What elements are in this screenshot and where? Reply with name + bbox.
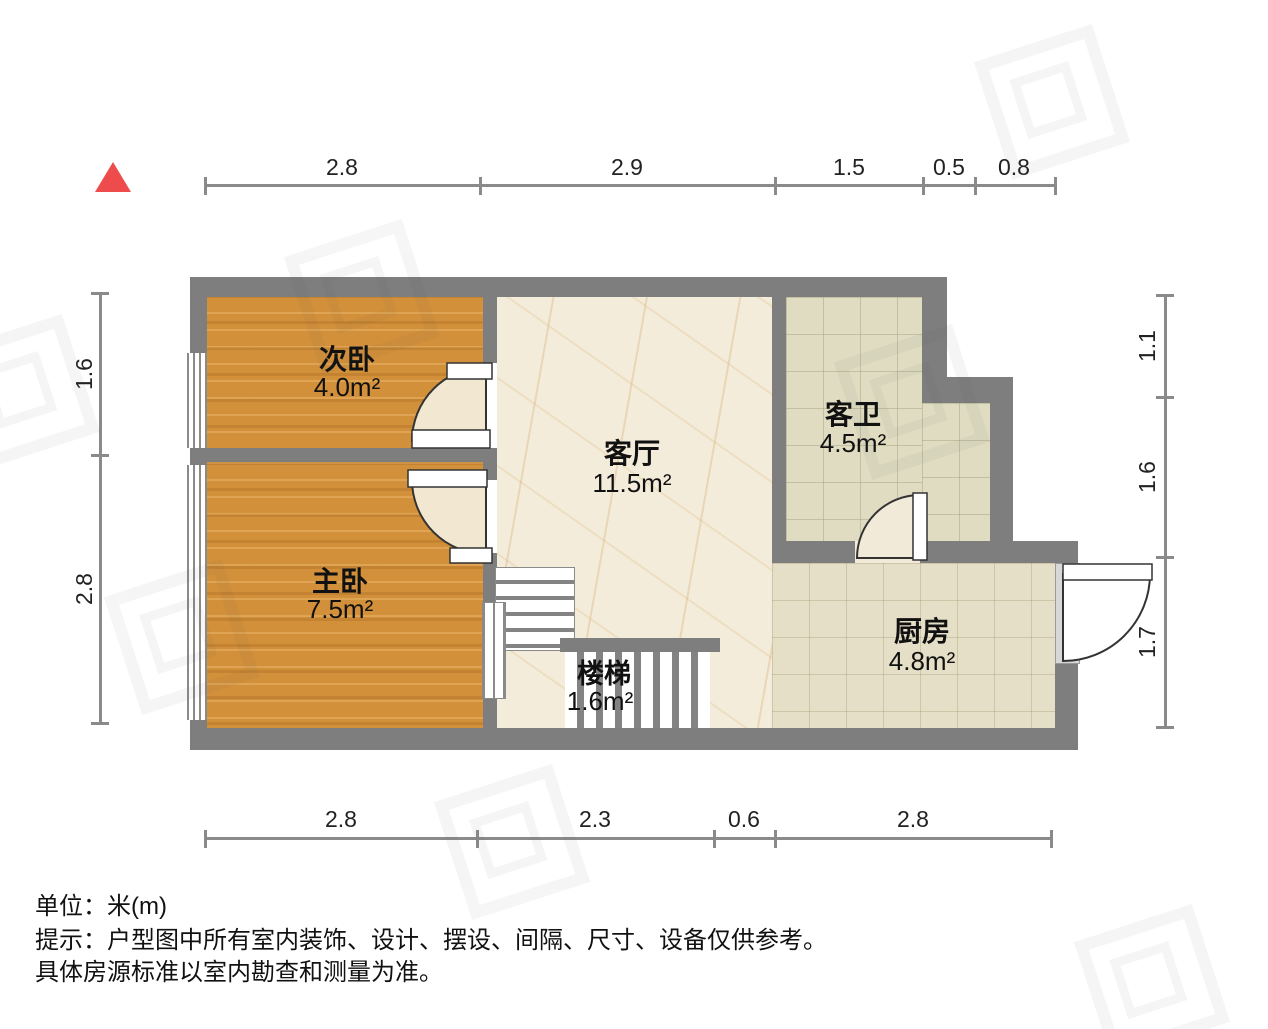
dim-right-3: 1.7 xyxy=(1134,612,1160,672)
area-master-bedroom: 7.5m² xyxy=(307,594,373,625)
label-kitchen: 厨房 xyxy=(894,610,950,650)
dim-bottom-2: 2.3 xyxy=(560,806,630,833)
label-guest-bathroom: 客卫 xyxy=(825,393,881,433)
entrance-door-leaf xyxy=(1063,564,1152,580)
master-bedroom-door-leaf xyxy=(408,470,487,487)
area-stairs: 1.6m² xyxy=(567,686,633,717)
dim-tick xyxy=(1156,556,1174,559)
dim-tick xyxy=(479,177,482,195)
dim-tick xyxy=(91,722,109,725)
area-second-bedroom: 4.0m² xyxy=(314,372,380,403)
area-kitchen: 4.8m² xyxy=(889,646,955,677)
dim-bottom-1: 2.8 xyxy=(306,806,376,833)
dim-tick xyxy=(774,177,777,195)
dim-tick xyxy=(1156,396,1174,399)
bathroom-door-leaf xyxy=(913,493,927,560)
dim-tick xyxy=(1054,177,1057,195)
dim-top-3: 1.5 xyxy=(814,154,884,181)
dim-tick xyxy=(204,177,207,195)
dim-tick xyxy=(91,454,109,457)
dim-top-4: 0.5 xyxy=(914,154,984,181)
dim-tick xyxy=(204,830,207,848)
second-bedroom-door-leaf xyxy=(412,430,490,448)
master-bedroom-door-jamb xyxy=(450,548,492,563)
dim-top-5: 0.8 xyxy=(979,154,1049,181)
dim-bottom-3: 0.6 xyxy=(709,806,779,833)
master-bedroom-door-swing xyxy=(412,480,486,554)
dim-tick xyxy=(1156,726,1174,729)
dim-top-1: 2.8 xyxy=(307,154,377,181)
floor-plan-page: 次卧 4.0m² 主卧 7.5m² 客厅 11.5m² 客卫 4.5m² 厨房 … xyxy=(0,0,1268,1029)
area-guest-bathroom: 4.5m² xyxy=(820,428,886,459)
area-living-room: 11.5m² xyxy=(593,468,672,499)
dim-tick xyxy=(91,292,109,295)
label-living-room: 客厅 xyxy=(604,432,660,472)
dim-left-1: 1.6 xyxy=(71,344,97,404)
bathroom-door-swing xyxy=(857,495,920,558)
dim-tick xyxy=(476,830,479,848)
dim-line-left xyxy=(99,293,102,723)
dim-right-2: 1.6 xyxy=(1134,447,1160,507)
dim-tick xyxy=(1156,294,1174,297)
dim-right-1: 1.1 xyxy=(1134,316,1160,376)
dim-tick xyxy=(1050,830,1053,848)
dim-line-top xyxy=(205,184,1055,187)
dim-top-2: 2.9 xyxy=(592,154,662,181)
second-bedroom-door-jamb xyxy=(447,363,492,379)
dim-line-right xyxy=(1164,295,1167,727)
dim-line-bottom xyxy=(205,837,1051,840)
dim-bottom-4: 2.8 xyxy=(878,806,948,833)
dim-left-2: 2.8 xyxy=(71,559,97,619)
